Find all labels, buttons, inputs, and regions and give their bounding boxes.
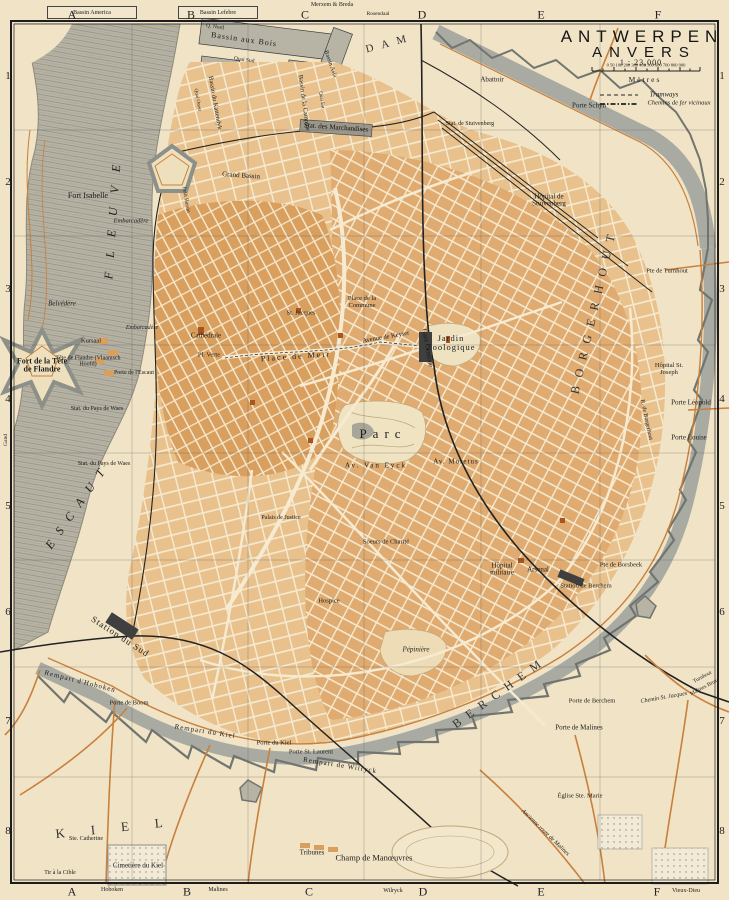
tribunes-label: Tribunes <box>300 849 325 856</box>
edge-hoboken: Hoboken <box>101 887 123 893</box>
grid-row-6-left: 6 <box>5 607 11 619</box>
kursaal-label: Kursaal <box>81 339 101 346</box>
cathedrale-label: Cathédrale <box>191 332 221 339</box>
place-commune-label: Place de la Commune <box>335 296 390 310</box>
grid-col-d-top: D <box>418 9 427 22</box>
edge-gand: Gand <box>4 434 10 446</box>
edge-box-bassin-america-label: Bassin America <box>73 10 111 16</box>
embarcadere-north-label: Embarcadère <box>114 219 149 226</box>
hopital-st-joseph-label: Hôpital St. Joseph <box>646 363 692 377</box>
grid-row-3-left: 3 <box>5 284 11 296</box>
av-moretus-label: Av. Moretus <box>433 458 478 465</box>
grid-row-4-left: 4 <box>5 394 11 406</box>
grid-row-5-right: 5 <box>719 501 725 513</box>
belvedere-label: Belvédère <box>48 300 76 307</box>
champ-manoeuvres-label: Champ de Manœuvres <box>334 854 414 863</box>
porte-st-laurent-label: Porte St. Laurent <box>289 750 333 757</box>
grid-row-7-right: 7 <box>719 716 725 728</box>
stat-waes-south-label: Stat. du Pays de Waes <box>75 461 133 467</box>
porte-louise-label: Porte Louise <box>671 434 707 441</box>
edge-wilryck: Wilryck <box>383 888 402 894</box>
edge-box-bassin-america: Bassin America <box>47 6 137 19</box>
grid-row-8-right: 8 <box>719 826 725 838</box>
grid-col-d-bottom: D <box>419 886 428 899</box>
porte-leopold-label: Porte Léopold <box>671 399 711 406</box>
porte-schyn-label: Porte Schyn <box>569 102 609 109</box>
city-blocks-oldtown <box>154 201 341 477</box>
legend-vicinaux-label: Chemins de fer vicinaux <box>648 101 711 108</box>
fort-tete-flandre-label: Fort de la Tête de Flandre <box>14 358 70 375</box>
porte-berchem-label: Porte de Berchem <box>569 699 616 706</box>
hopital-stuivenberg-label: Hôpital de Stuivenberg <box>519 194 579 209</box>
stat-stuivenberg-label: Stat. de Stuivenberg <box>439 121 501 127</box>
grid-col-f-top: F <box>655 9 662 22</box>
stat-waes-north-label: Stat. du Pays de Waes <box>68 406 126 412</box>
grid-row-8-left: 8 <box>5 826 11 838</box>
place-verte-label: Pl. Verte <box>198 353 220 360</box>
parc-label: Parc <box>359 427 406 441</box>
edge-merxem-breda: Merxem & Breda <box>311 2 353 8</box>
grid-col-c-top: C <box>301 9 309 22</box>
grid-col-e-bottom: E <box>537 886 544 899</box>
porte-malines-label: Porte de Malines <box>555 724 602 731</box>
garden-se <box>598 815 642 849</box>
arsenal-label: Arsenal <box>527 566 549 573</box>
grid-row-3-right: 3 <box>719 284 725 296</box>
grid-row-4-right: 4 <box>719 394 725 406</box>
porte-escaut-label: Porte de l'Escaut <box>114 370 154 376</box>
cimetiere-kiel-label: Cimetière du Kiel <box>112 862 164 869</box>
porte-du-kiel-label: Porte du Kiel <box>257 741 292 748</box>
soeurs-charite-label: Soeurs de Charité <box>362 540 410 547</box>
grid-row-7-left: 7 <box>5 716 11 728</box>
grid-col-c-bottom: C <box>305 886 313 899</box>
fort-isabelle-label: Fort Isabelle <box>61 192 115 200</box>
antwerp-city-map: ANTWERPEN ANVERS 1 : 23,000 0 50 100 200… <box>0 0 729 900</box>
legend-tramways-label: Tramways <box>650 91 679 98</box>
grid-col-e-top: E <box>537 9 544 22</box>
grid-col-a-bottom: A <box>68 886 77 899</box>
edge-rosendaal: Rosendaal <box>367 12 390 18</box>
tir-a-la-cible-label: Tir à la Cible <box>44 870 76 876</box>
av-van-eyck-label: Av. Van Eyck <box>345 462 407 469</box>
porte-borsbeek-label: Pte de Borsbeek <box>600 563 642 570</box>
grid-col-a-top: A <box>68 9 77 22</box>
embarcadere-south-label: Embarcadère <box>126 325 158 331</box>
grid-col-b-top: B <box>187 9 195 22</box>
grid-row-5-left: 5 <box>5 501 11 513</box>
ste-catherine-label: Ste. Catherine <box>69 836 103 842</box>
grid-row-1-right: 1 <box>719 71 725 83</box>
palais-justice-label: Palais de Justice <box>258 515 304 521</box>
grid-row-1-left: 1 <box>5 71 11 83</box>
porte-de-boom-label: Porte de Boom <box>110 701 149 708</box>
jardin-zoologique-label: Jardin Zoologique <box>421 334 481 352</box>
grid-row-6-right: 6 <box>719 607 725 619</box>
hospice-label: Hospice <box>318 599 339 606</box>
st-jacques-label: St. Jacques <box>287 311 316 318</box>
grid-col-b-bottom: B <box>183 886 191 899</box>
eglise-ste-marie-label: Église Ste. Marie <box>554 794 606 801</box>
edge-vieux-dieu: Vieux-Dieu <box>672 888 700 894</box>
pepiniere-label: Pépinière <box>403 646 430 653</box>
scale-bar-unit: Mètres <box>629 76 662 84</box>
grid-row-2-left: 2 <box>5 177 11 189</box>
abattoir-label: Abattoir <box>480 76 503 83</box>
porte-turnhout-label: Pte de Turnhout <box>646 269 688 276</box>
edge-malines: Malines <box>208 887 227 893</box>
scale-bar-ticks: 0 50 100 200 300 400 500 600 700 800 900 <box>607 64 686 69</box>
garden-se <box>652 848 708 884</box>
edge-box-bassin-lefebre-label: Bassin Lefebre <box>200 10 236 16</box>
grid-row-2-right: 2 <box>719 177 725 189</box>
hopital-militaire-label: Hôpital militaire <box>479 563 525 578</box>
grid-col-f-bottom: F <box>654 886 661 899</box>
station-berchem-label: Station de Berchem <box>560 584 612 591</box>
